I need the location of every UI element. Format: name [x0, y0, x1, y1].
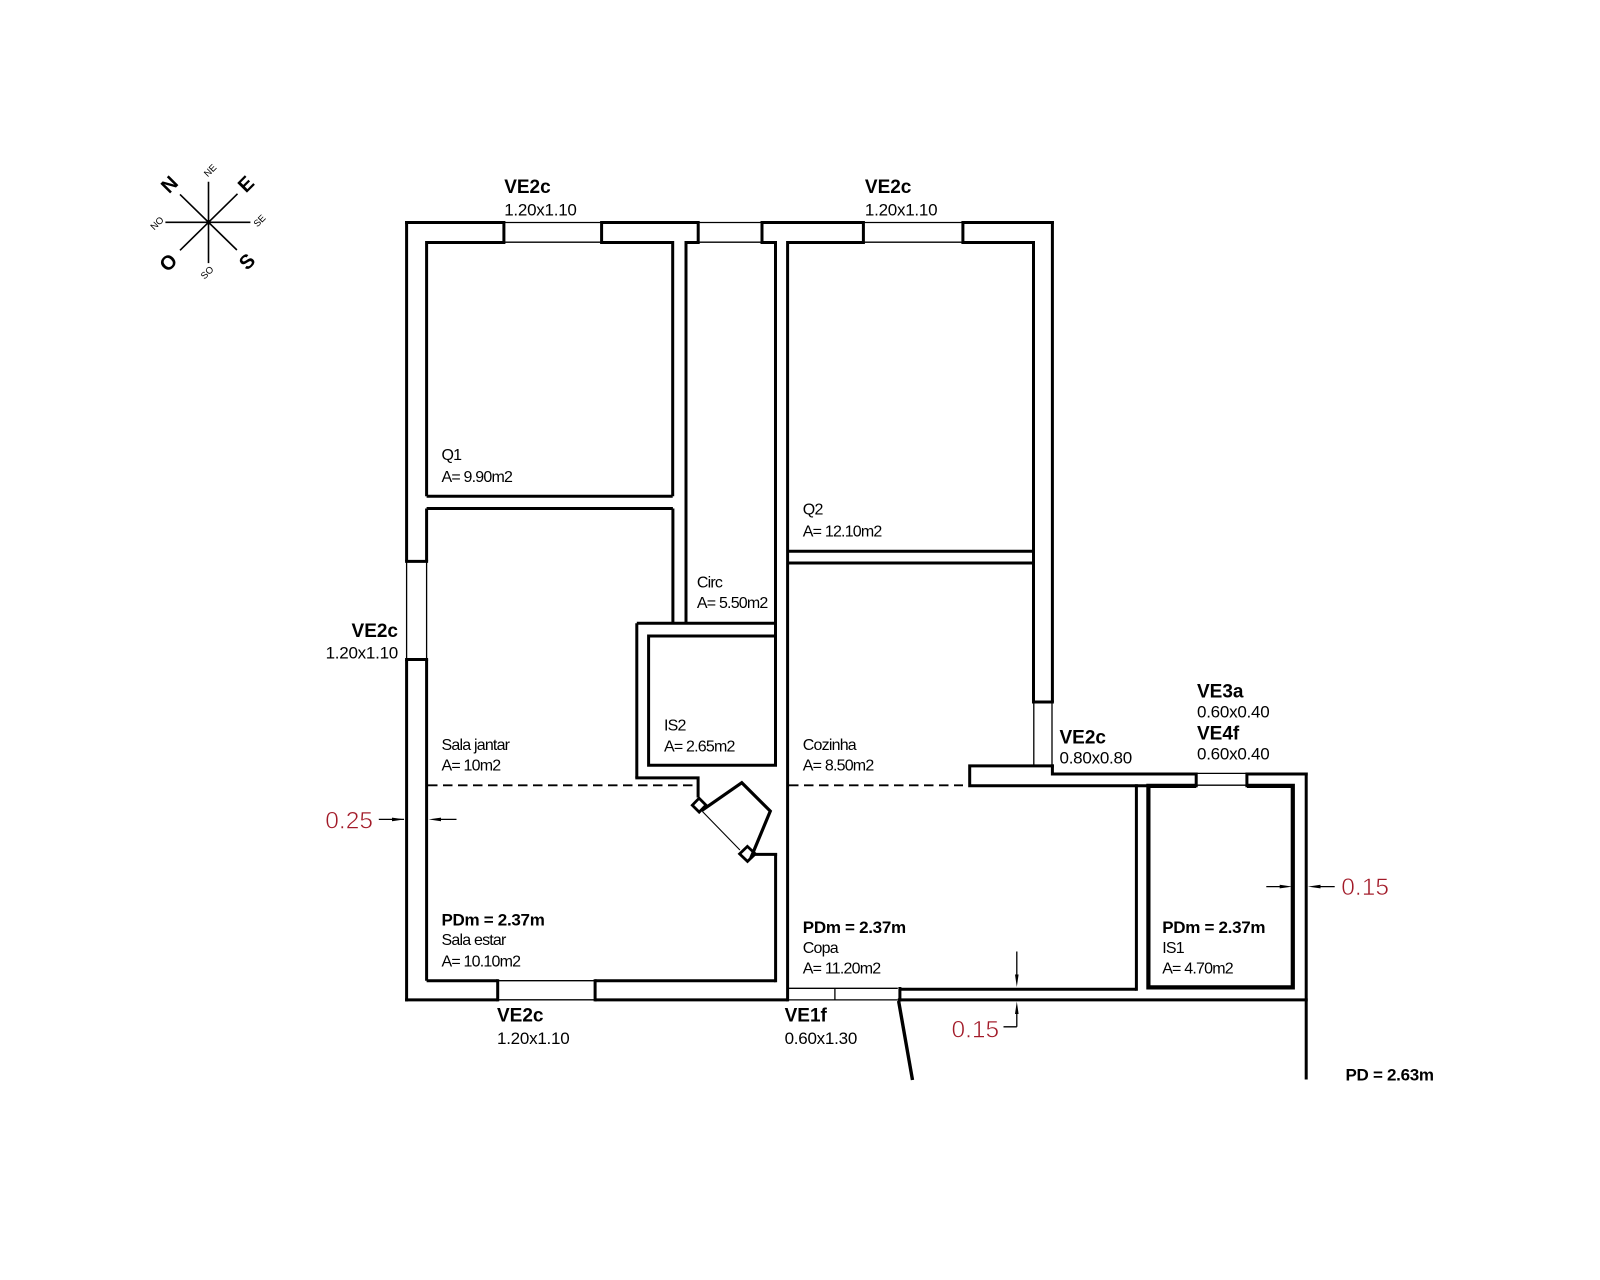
- svg-text:VE4f: VE4f: [1197, 724, 1240, 745]
- svg-text:VE1f: VE1f: [785, 1005, 828, 1026]
- svg-text:Copa: Copa: [803, 940, 839, 957]
- svg-text:VE2c: VE2c: [497, 1005, 544, 1026]
- svg-text:1.20x1.10: 1.20x1.10: [326, 644, 398, 663]
- svg-text:A= 10.10m2: A= 10.10m2: [442, 953, 522, 970]
- svg-text:A= 2.65m2: A= 2.65m2: [664, 738, 736, 755]
- svg-text:1.20x1.10: 1.20x1.10: [497, 1029, 569, 1048]
- svg-text:A= 11.20m2: A= 11.20m2: [803, 960, 881, 977]
- svg-text:VE2c: VE2c: [504, 177, 551, 198]
- svg-text:0.25: 0.25: [325, 807, 373, 834]
- svg-text:1.20x1.10: 1.20x1.10: [504, 200, 576, 219]
- svg-text:1.20x1.10: 1.20x1.10: [865, 200, 937, 219]
- svg-text:VE2c: VE2c: [1060, 728, 1107, 749]
- svg-text:Circ: Circ: [697, 574, 723, 591]
- svg-text:0.60x0.40: 0.60x0.40: [1197, 703, 1269, 722]
- svg-text:0.80x0.80: 0.80x0.80: [1060, 749, 1132, 768]
- svg-text:PDm = 2.37m: PDm = 2.37m: [1162, 918, 1265, 937]
- svg-text:PD = 2.63m: PD = 2.63m: [1346, 1065, 1434, 1084]
- svg-text:0.15: 0.15: [1341, 874, 1389, 901]
- svg-text:0.60x0.40: 0.60x0.40: [1197, 745, 1269, 764]
- svg-text:PDm = 2.37m: PDm = 2.37m: [803, 918, 906, 937]
- svg-text:A= 12.10m2: A= 12.10m2: [803, 524, 883, 541]
- svg-text:0.15: 0.15: [952, 1016, 1000, 1043]
- svg-text:A= 8.50m2: A= 8.50m2: [803, 757, 875, 774]
- svg-text:Q1: Q1: [442, 447, 463, 464]
- svg-text:0.60x1.30: 0.60x1.30: [785, 1029, 857, 1048]
- svg-text:A= 10m2: A= 10m2: [442, 757, 502, 774]
- svg-text:VE3a: VE3a: [1197, 681, 1244, 702]
- svg-text:A= 9.90m2: A= 9.90m2: [442, 469, 514, 486]
- svg-text:A= 5.50m2: A= 5.50m2: [697, 595, 769, 612]
- svg-text:Q2: Q2: [803, 502, 824, 519]
- svg-text:IS2: IS2: [664, 717, 687, 734]
- svg-text:A= 4.70m2: A= 4.70m2: [1162, 960, 1234, 977]
- svg-text:Sala jantar: Sala jantar: [442, 737, 511, 754]
- svg-text:Cozinha: Cozinha: [803, 737, 857, 754]
- svg-text:VE2c: VE2c: [865, 177, 912, 198]
- svg-text:VE2c: VE2c: [352, 621, 399, 642]
- svg-text:IS1: IS1: [1162, 940, 1185, 957]
- svg-text:PDm = 2.37m: PDm = 2.37m: [442, 911, 545, 930]
- svg-text:Sala estar: Sala estar: [442, 932, 508, 949]
